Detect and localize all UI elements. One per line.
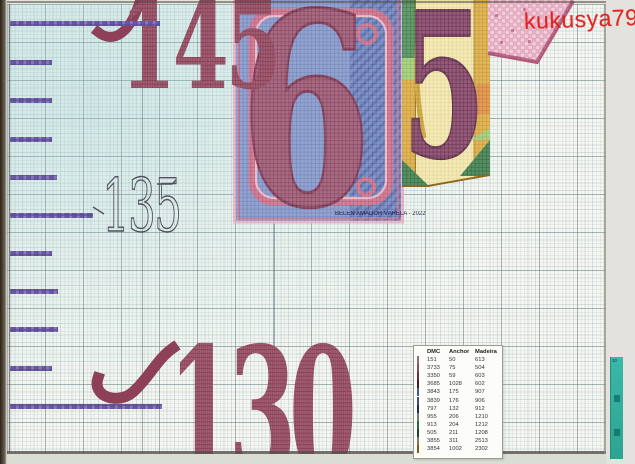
- scan-edge: [604, 4, 606, 454]
- ruler-tick: [10, 60, 52, 65]
- ruler-tick: [10, 251, 52, 256]
- ruler-tick: [10, 137, 52, 142]
- legend-row: 36851028602: [417, 380, 502, 388]
- legend-row: 9132041212: [417, 421, 502, 429]
- legend-value-madeira: 1210: [475, 413, 503, 421]
- height-marker-135: 135: [102, 164, 180, 249]
- legend-row: 3839176906: [417, 397, 502, 405]
- ruler-tick: [10, 404, 162, 409]
- legend-symbol: [417, 356, 419, 364]
- legend-value-madeira: 603: [475, 372, 503, 380]
- legend-symbol: [417, 445, 419, 453]
- watermark: kukusya79: [524, 4, 635, 35]
- legend-value-madeira: 602: [475, 380, 503, 388]
- legend-row: 797132912: [417, 405, 502, 413]
- legend-value-dmc: 3350: [427, 372, 449, 380]
- legend-value-anchor: 204: [449, 421, 475, 429]
- ruler-tick: [10, 289, 58, 294]
- legend-symbol: [417, 372, 419, 380]
- legend-value-anchor: 50: [449, 356, 475, 364]
- strip-mark: [614, 429, 620, 436]
- flourish-swash: [97, 348, 173, 398]
- ruler-tick: [10, 366, 52, 371]
- legend-header-row: DMCAnchorMadeira: [417, 348, 502, 356]
- strip-mark: [614, 395, 620, 402]
- ruler-tick: [10, 98, 52, 103]
- legend-symbol: [417, 388, 419, 396]
- scan-edge: [0, 0, 7, 464]
- legend-symbol: [417, 380, 419, 388]
- legend-value-madeira: 1208: [475, 429, 503, 437]
- svg-text:130: 130: [168, 308, 353, 464]
- legend-table: DMCAnchorMadeira151506133733755043350596…: [413, 345, 503, 459]
- legend-symbol: [417, 397, 419, 405]
- strip-page-number: 10: [612, 358, 617, 363]
- legend-value-dmc: 3854: [427, 445, 449, 453]
- scan-edge: [7, 451, 606, 454]
- legend-value-madeira: 912: [475, 405, 503, 413]
- scanned-pattern-page: 6 BELEN AMADOR VARELA - 2022 5: [0, 0, 635, 464]
- legend-value-dmc: 797: [427, 405, 449, 413]
- svg-text:145: 145: [120, 0, 278, 118]
- ruler-tick: [10, 213, 93, 218]
- legend-value-anchor: 75: [449, 364, 475, 372]
- legend-row: 3843175907: [417, 388, 502, 396]
- legend-symbol: [417, 429, 419, 437]
- legend-row: 9552061210: [417, 413, 502, 421]
- legend-header: DMC: [427, 348, 449, 356]
- page-margin: [7, 454, 606, 464]
- legend-value-madeira: 504: [475, 364, 503, 372]
- legend-value-dmc: 3855: [427, 437, 449, 445]
- legend-value-anchor: 59: [449, 372, 475, 380]
- legend-value-anchor: 311: [449, 437, 475, 445]
- ruler-tick: [10, 327, 58, 332]
- next-page-strip: 10: [610, 357, 623, 459]
- legend-value-anchor: 132: [449, 405, 475, 413]
- legend-symbol: [417, 437, 419, 445]
- legend-value-anchor: 175: [449, 388, 475, 396]
- legend-value-dmc: 3733: [427, 364, 449, 372]
- legend-value-madeira: 613: [475, 356, 503, 364]
- scan-edge: [7, 1, 606, 3]
- legend-symbol: [417, 364, 419, 372]
- legend-value-madeira: 2302: [475, 445, 503, 453]
- legend-value-anchor: 1002: [449, 445, 475, 453]
- legend-row: 38553112513: [417, 437, 502, 445]
- legend-value-anchor: 211: [449, 429, 475, 437]
- legend-symbol: [417, 413, 419, 421]
- legend-value-madeira: 906: [475, 397, 503, 405]
- legend-value-dmc: 505: [427, 429, 449, 437]
- legend-value-dmc: 913: [427, 421, 449, 429]
- legend-value-anchor: 206: [449, 413, 475, 421]
- legend-symbol: [417, 405, 419, 413]
- legend-value-anchor: 1028: [449, 380, 475, 388]
- legend-header: Anchor: [449, 348, 475, 356]
- legend-value-anchor: 176: [449, 397, 475, 405]
- block-five: 5: [402, 0, 490, 203]
- legend-value-dmc: 955: [427, 413, 449, 421]
- legend-header: Madeira: [475, 348, 503, 356]
- legend-value-dmc: 3685: [427, 380, 449, 388]
- designer-credit: BELEN AMADOR VARELA - 2022: [335, 211, 426, 217]
- legend-row: 335059603: [417, 372, 502, 380]
- legend-value-dmc: 151: [427, 356, 449, 364]
- legend-row: 5052111208: [417, 429, 502, 437]
- legend-value-dmc: 3843: [427, 388, 449, 396]
- ruler-tick: [10, 175, 57, 180]
- legend-value-madeira: 2513: [475, 437, 503, 445]
- legend-row: 373375504: [417, 364, 502, 372]
- legend-value-madeira: 1212: [475, 421, 503, 429]
- legend-value-dmc: 3839: [427, 397, 449, 405]
- legend-row: 385410022302: [417, 445, 502, 453]
- legend-value-madeira: 907: [475, 388, 503, 396]
- ruler-tick: [10, 21, 160, 26]
- legend-symbol: [417, 421, 419, 429]
- pattern-artwork: 6 BELEN AMADOR VARELA - 2022 5: [0, 0, 635, 464]
- legend-row: 15150613: [417, 356, 502, 364]
